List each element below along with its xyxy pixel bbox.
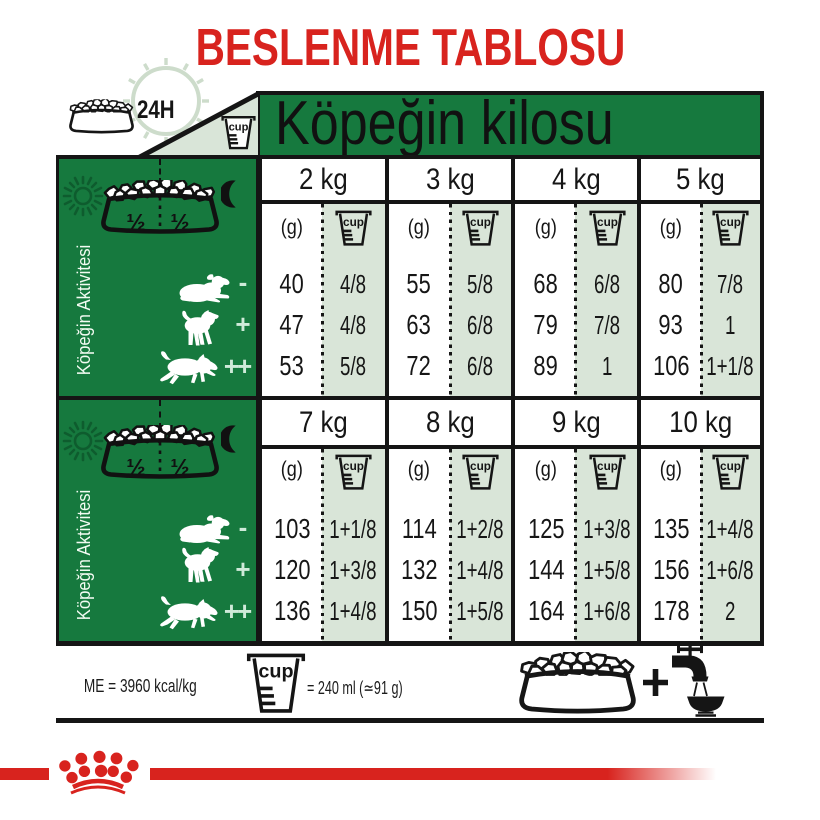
svg-text:cup: cup — [597, 460, 618, 473]
svg-text:cup: cup — [720, 216, 741, 229]
svg-text:cup: cup — [258, 661, 293, 683]
svg-text:cup: cup — [343, 216, 364, 229]
svg-text:cup: cup — [343, 460, 364, 473]
svg-text:½: ½ — [170, 209, 189, 235]
svg-text:cup: cup — [229, 122, 249, 134]
svg-text:½: ½ — [126, 454, 145, 480]
svg-text:½: ½ — [126, 209, 145, 235]
svg-text:cup: cup — [470, 460, 491, 473]
svg-text:cup: cup — [597, 216, 618, 229]
svg-text:cup: cup — [470, 216, 491, 229]
svg-text:cup: cup — [720, 460, 741, 473]
svg-text:½: ½ — [170, 454, 189, 480]
